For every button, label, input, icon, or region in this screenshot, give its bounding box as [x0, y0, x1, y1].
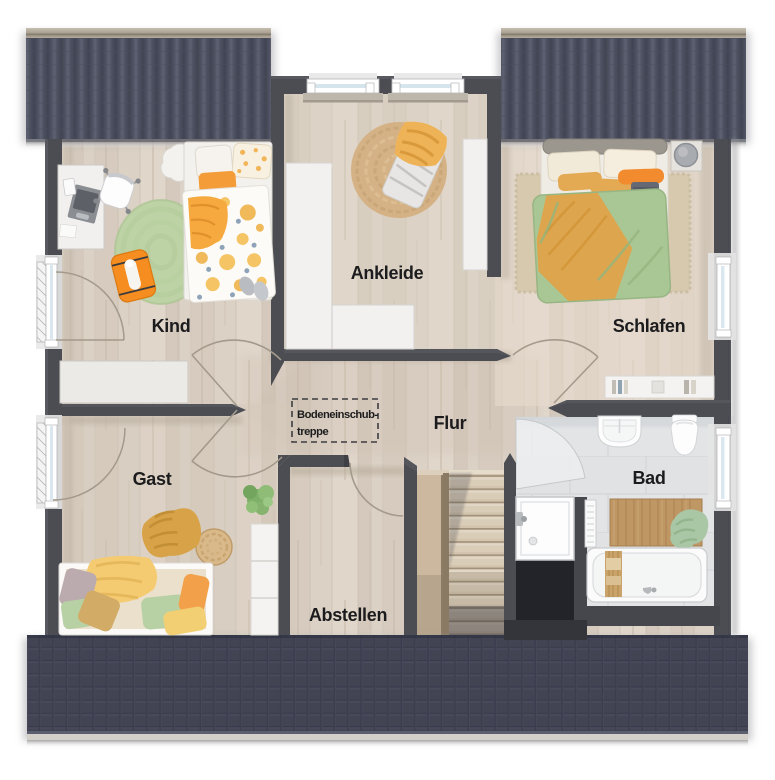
svg-text:Schlafen: Schlafen	[613, 316, 686, 336]
svg-text:Kind: Kind	[152, 316, 191, 336]
svg-text:Abstellen: Abstellen	[309, 605, 387, 625]
svg-text:Bodeneinschub-: Bodeneinschub-	[297, 409, 378, 421]
svg-text:treppe: treppe	[297, 426, 328, 438]
svg-text:Gast: Gast	[133, 469, 172, 489]
svg-text:Flur: Flur	[434, 413, 467, 433]
svg-text:Ankleide: Ankleide	[351, 263, 424, 283]
svg-text:Bad: Bad	[632, 468, 665, 488]
